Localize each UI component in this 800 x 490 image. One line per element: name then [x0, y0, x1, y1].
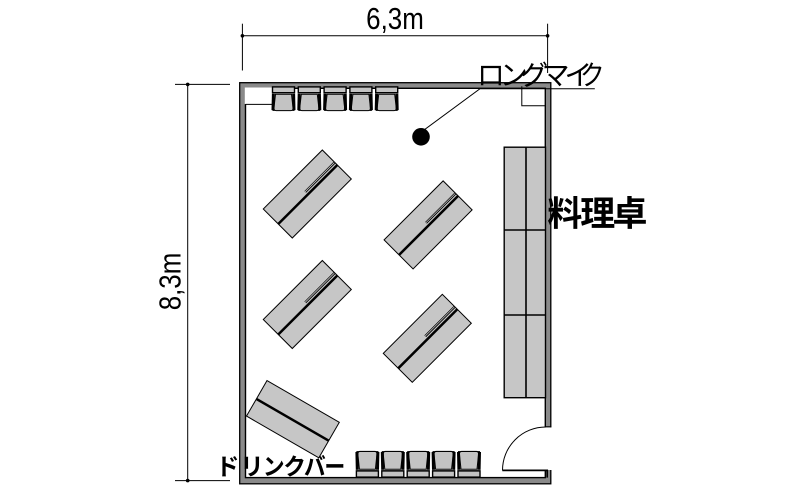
svg-text:8,3m: 8,3m — [152, 253, 186, 311]
svg-text:6,3m: 6,3m — [366, 1, 424, 35]
